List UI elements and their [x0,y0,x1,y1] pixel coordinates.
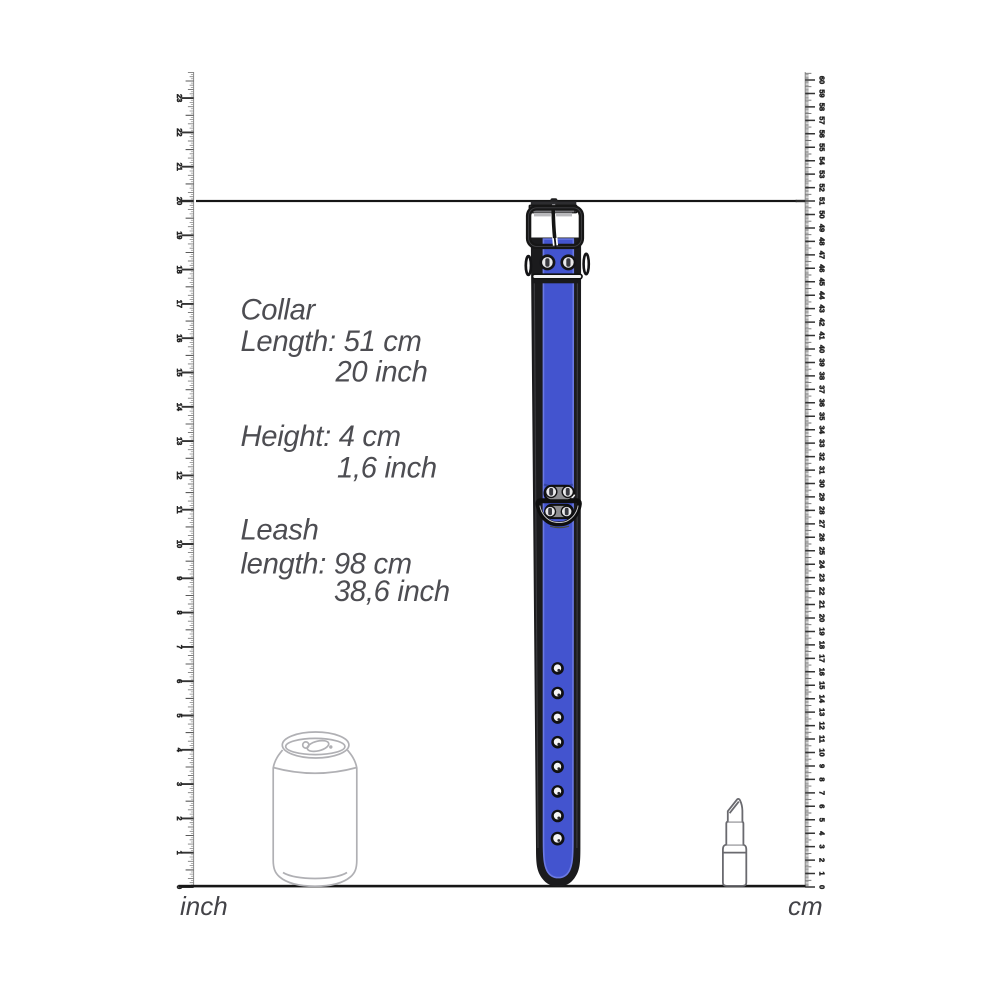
svg-text:20 inch: 20 inch [335,357,428,389]
svg-text:0: 0 [817,885,826,889]
svg-text:45: 45 [817,278,826,286]
svg-text:1,6 inch: 1,6 inch [337,453,437,485]
svg-text:49: 49 [817,224,826,232]
svg-text:27: 27 [817,520,826,528]
svg-text:48: 48 [817,237,826,245]
svg-text:56: 56 [817,130,826,138]
svg-text:7: 7 [817,791,826,795]
svg-text:5: 5 [817,818,826,822]
svg-text:3: 3 [175,782,184,786]
svg-text:33: 33 [817,439,826,447]
svg-text:59: 59 [817,89,826,97]
svg-text:5: 5 [175,713,184,717]
svg-text:13: 13 [175,437,184,445]
svg-text:16: 16 [817,668,826,676]
svg-text:17: 17 [175,300,184,308]
svg-text:7: 7 [175,645,184,649]
svg-text:12: 12 [817,721,826,729]
svg-text:42: 42 [817,318,826,326]
svg-text:8: 8 [817,777,826,781]
svg-text:16: 16 [175,334,184,342]
svg-text:1: 1 [817,871,826,875]
svg-text:23: 23 [817,574,826,582]
svg-text:22: 22 [817,587,826,595]
svg-text:20: 20 [817,614,826,622]
svg-text:11: 11 [175,506,184,514]
svg-text:41: 41 [817,331,826,339]
svg-text:21: 21 [175,163,184,171]
svg-text:18: 18 [817,641,826,649]
svg-text:40: 40 [817,345,826,353]
svg-text:43: 43 [817,304,826,312]
svg-text:51: 51 [817,197,826,205]
svg-text:26: 26 [817,533,826,541]
svg-text:15: 15 [817,681,826,689]
svg-text:34: 34 [817,426,826,435]
svg-text:53: 53 [817,170,826,178]
svg-text:10: 10 [817,748,826,756]
svg-text:Length: 51 cm: Length: 51 cm [241,326,422,358]
svg-text:55: 55 [817,143,826,151]
svg-text:22: 22 [175,128,184,136]
svg-text:23: 23 [175,94,184,102]
svg-text:14: 14 [175,403,184,412]
svg-text:46: 46 [817,264,826,272]
svg-text:inch: inch [180,891,228,921]
svg-text:Collar: Collar [241,295,317,327]
svg-text:28: 28 [817,506,826,514]
svg-text:4: 4 [175,748,184,753]
svg-text:54: 54 [817,157,826,166]
svg-text:1: 1 [175,851,184,855]
svg-text:58: 58 [817,103,826,111]
svg-text:36: 36 [817,399,826,407]
svg-text:19: 19 [817,627,826,635]
svg-text:35: 35 [817,412,826,420]
svg-text:4: 4 [817,831,826,836]
svg-text:9: 9 [175,576,184,580]
svg-text:2: 2 [175,816,184,820]
svg-text:2: 2 [817,858,826,862]
svg-text:50: 50 [817,210,826,218]
svg-text:39: 39 [817,358,826,366]
svg-text:10: 10 [175,540,184,548]
svg-text:44: 44 [817,291,826,300]
svg-text:6: 6 [817,804,826,808]
svg-text:60: 60 [817,76,826,84]
svg-text:19: 19 [175,231,184,239]
svg-text:17: 17 [817,654,826,662]
svg-text:25: 25 [817,547,826,555]
svg-text:14: 14 [817,695,826,704]
svg-text:15: 15 [175,368,184,376]
svg-text:38: 38 [817,372,826,380]
svg-text:8: 8 [175,611,184,615]
svg-text:30: 30 [817,479,826,487]
svg-text:31: 31 [817,466,826,474]
svg-text:13: 13 [817,708,826,716]
svg-text:57: 57 [817,116,826,124]
svg-text:6: 6 [175,679,184,683]
svg-text:9: 9 [817,764,826,768]
svg-text:cm: cm [788,891,823,921]
svg-text:24: 24 [817,560,826,569]
svg-text:21: 21 [817,600,826,608]
svg-text:32: 32 [817,452,826,460]
svg-text:Leash: Leash [241,515,319,547]
svg-text:18: 18 [175,265,184,273]
svg-text:12: 12 [175,471,184,479]
svg-text:52: 52 [817,183,826,191]
svg-text:38,6 inch: 38,6 inch [334,576,450,608]
svg-text:37: 37 [817,385,826,393]
svg-text:3: 3 [817,845,826,849]
svg-text:Height: 4 cm: Height: 4 cm [241,421,401,453]
svg-text:29: 29 [817,493,826,501]
svg-text:47: 47 [817,251,826,259]
svg-text:11: 11 [817,735,826,743]
